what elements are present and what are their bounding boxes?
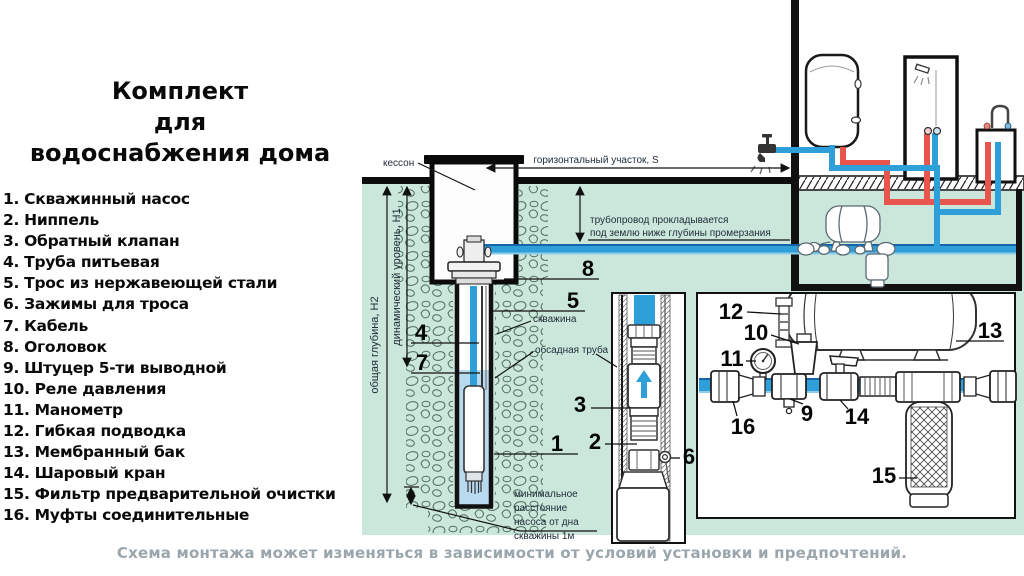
detail-panel-surface bbox=[697, 282, 1016, 518]
callout-4: 4 bbox=[415, 320, 428, 345]
callout-3: 3 bbox=[574, 392, 586, 417]
legend-item: 1. Скважинный насос bbox=[3, 189, 361, 210]
legend-item: 5. Трос из нержавеющей стали bbox=[3, 273, 361, 294]
callout-2: 2 bbox=[589, 429, 601, 454]
label-kesson: кессон bbox=[383, 158, 414, 169]
legend-item: 4. Труба питьевая bbox=[3, 252, 361, 273]
water-heater bbox=[806, 55, 861, 147]
callout-12: 12 bbox=[719, 299, 743, 324]
legend-item: 8. Оголовок bbox=[3, 337, 361, 358]
legend-item: 6. Зажимы для троса bbox=[3, 294, 361, 315]
callout-6: 6 bbox=[683, 444, 695, 469]
basement-floor-line bbox=[791, 284, 1022, 291]
well bbox=[455, 282, 493, 508]
callout-10: 10 bbox=[744, 320, 768, 345]
legend-item: 3. Обратный клапан bbox=[3, 231, 361, 252]
callout-16: 16 bbox=[731, 414, 755, 439]
label-pipeline-2: под землю ниже глубины промерзания bbox=[590, 227, 771, 239]
label-casing: обсадная труба bbox=[535, 344, 608, 356]
callout-8: 8 bbox=[582, 256, 594, 281]
basement-right-wall bbox=[1016, 189, 1022, 286]
legend-item: 15. Фильтр предварительной очистки bbox=[3, 484, 361, 505]
sink-faucet-icon bbox=[984, 106, 1011, 129]
callout-11: 11 bbox=[720, 346, 743, 371]
legend-list: 1. Скважинный насос 2. Ниппель 3. Обратн… bbox=[3, 189, 361, 527]
label-total-depth: общая глубина, Н2 bbox=[369, 296, 381, 393]
label-min-2: расстояние bbox=[514, 503, 568, 514]
label-horizontal-section: горизонтальный участок, S bbox=[533, 155, 659, 166]
title-line-2: для bbox=[0, 107, 360, 138]
title-line-3: водоснабжения дома bbox=[0, 138, 360, 169]
label-dynamic-level: динамический уровень, Н1 bbox=[391, 208, 403, 345]
stones-left-lower bbox=[406, 282, 453, 508]
legend-item: 10. Реле давления bbox=[3, 379, 361, 400]
detail-pipe bbox=[634, 295, 655, 325]
label-min-4: скважины 1м bbox=[514, 531, 574, 542]
legend-item: 12. Гибкая подводка bbox=[3, 421, 361, 442]
legend-item: 16. Муфты соединительные bbox=[3, 505, 361, 526]
pre-filter bbox=[896, 372, 960, 507]
legend-item: 7. Кабель bbox=[3, 316, 361, 337]
shower-cabin bbox=[905, 57, 957, 179]
detail-panel-pump bbox=[612, 293, 685, 543]
legend-panel: Комплект для водоснабжения дома 1. Скваж… bbox=[0, 0, 362, 576]
label-min-1: минимальное bbox=[514, 489, 578, 500]
callout-15: 15 bbox=[872, 463, 896, 488]
basement-filter bbox=[866, 254, 888, 280]
cable-clamp bbox=[660, 452, 671, 463]
page-title: Комплект для водоснабжения дома bbox=[0, 76, 360, 169]
legend-item: 13. Мембранный бак bbox=[3, 442, 361, 463]
screenshot-root: кессон горизонтальный участок, S трубопр… bbox=[0, 0, 1024, 576]
label-pipeline-1: трубопровод прокладывается bbox=[590, 214, 728, 226]
legend-item: 9. Штуцер 5-ти выводной bbox=[3, 358, 361, 379]
threaded-section bbox=[860, 377, 896, 396]
shower-valve-hot bbox=[925, 128, 932, 135]
title-line-1: Комплект bbox=[0, 76, 360, 107]
borehole-pump bbox=[464, 386, 484, 494]
label-well: скважина bbox=[533, 314, 577, 325]
stones-right-upper bbox=[519, 186, 548, 282]
legend-item: 2. Ниппель bbox=[3, 210, 361, 231]
callout-13: 13 bbox=[978, 318, 1002, 343]
callout-9: 9 bbox=[801, 401, 813, 426]
legend-item: 11. Манометр bbox=[3, 400, 361, 421]
filter-mesh bbox=[911, 407, 947, 487]
label-min-3: насоса от дна bbox=[514, 517, 579, 528]
callout-7: 7 bbox=[416, 350, 428, 375]
callout-14: 14 bbox=[845, 404, 870, 429]
callout-1: 1 bbox=[551, 431, 563, 456]
legend-item: 14. Шаровый кран bbox=[3, 463, 361, 484]
detail-pump-body bbox=[617, 488, 669, 541]
basement-tank bbox=[826, 206, 880, 242]
shower-valve-cold bbox=[934, 128, 941, 135]
footer-caption: Схема монтажа может изменяться в зависим… bbox=[0, 544, 1024, 562]
callout-5: 5 bbox=[567, 288, 579, 313]
